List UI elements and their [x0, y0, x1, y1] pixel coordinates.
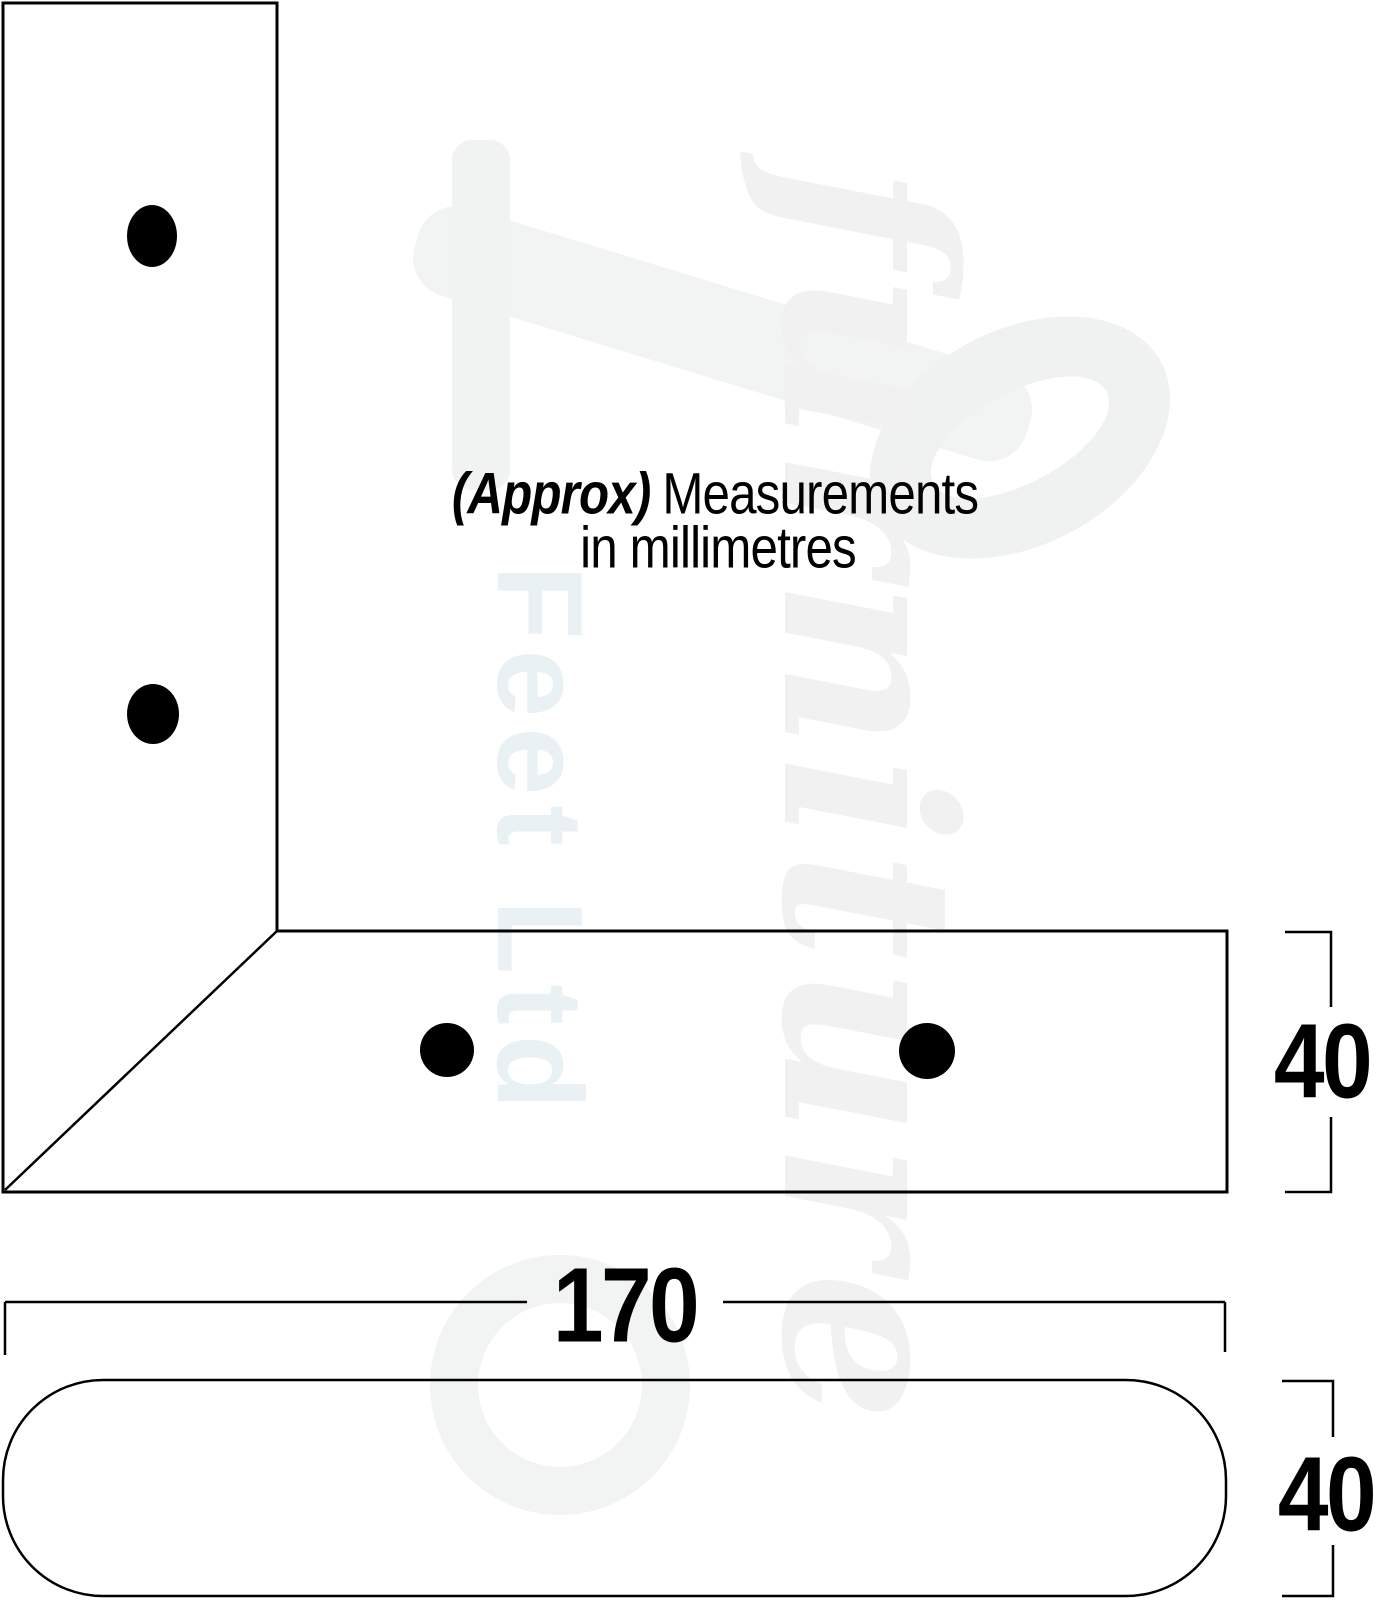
dimension-diagram: furniture Feet Ltd (Approx)Measurements …	[0, 0, 1379, 1600]
base-plate-side-view	[3, 1380, 1226, 1596]
corner-diagonal-line	[5, 931, 277, 1190]
bracket-outline	[3, 3, 1227, 1192]
screw-hole-dot-top	[127, 205, 177, 267]
measurement-note-line2: in millimetres	[580, 515, 856, 582]
screw-hole-dot-middle	[127, 684, 179, 744]
dim-value-base-height: 40	[1278, 1435, 1374, 1556]
dim-value-arm-height: 40	[1274, 1002, 1370, 1123]
screw-hole-dot-base-left	[420, 1023, 474, 1077]
dim-value-base-length: 170	[553, 1246, 697, 1367]
screw-hole-dot-base-right	[899, 1023, 955, 1079]
